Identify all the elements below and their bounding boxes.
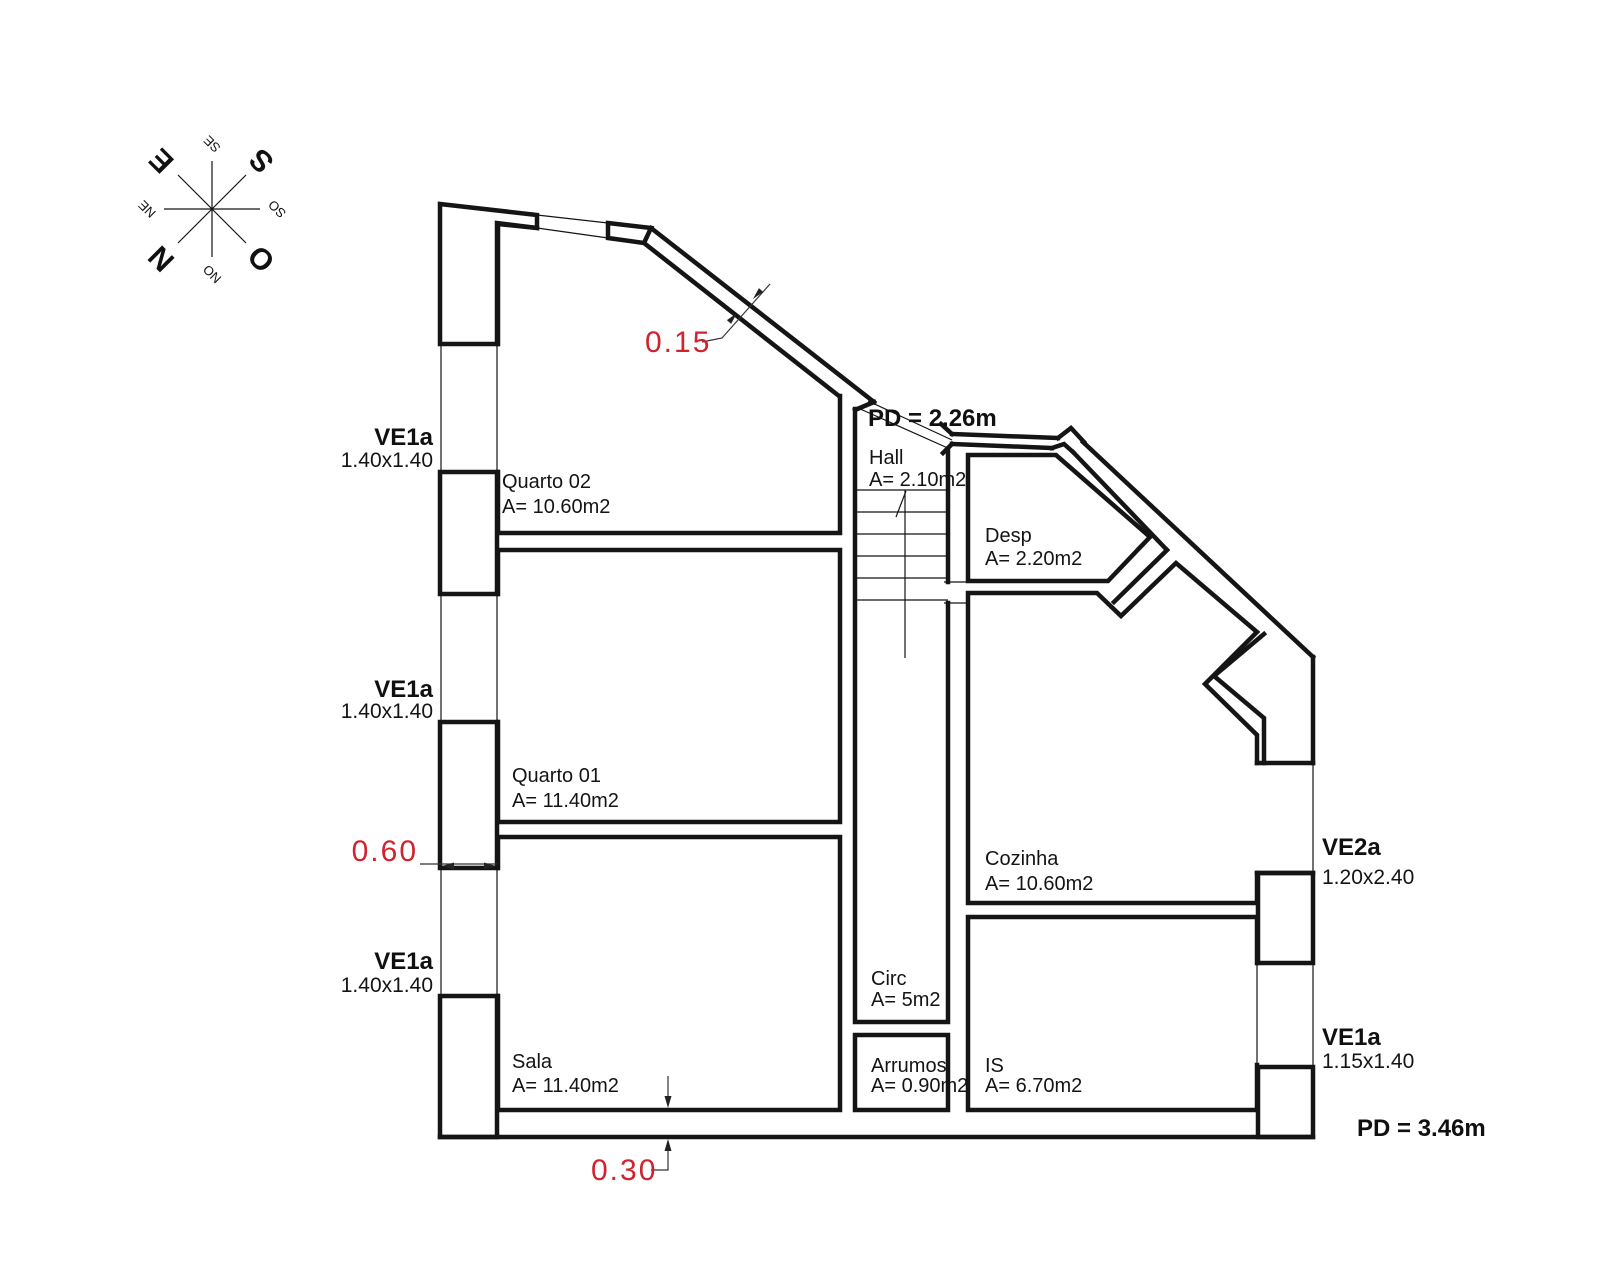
wall-right-diagonal-outer — [1083, 442, 1313, 657]
room-label-arrumos: Arrumos — [871, 1056, 947, 1076]
dim-wall-060: 0.60 — [352, 837, 418, 867]
wall-diagonal-inner — [644, 243, 839, 396]
wall-left-box4 — [440, 996, 497, 1137]
window-label-ve1a-2: VE1a — [374, 678, 433, 702]
windows-right-glazing — [1257, 763, 1313, 1067]
window-size-ve2a: 1.20x2.40 — [1322, 867, 1414, 888]
room-area-is: A= 6.70m2 — [985, 1076, 1082, 1096]
wall-right-box2 — [1258, 1067, 1313, 1137]
dim-030-arrow-up — [665, 1139, 672, 1151]
window-ve2a-jambs — [1257, 763, 1313, 873]
wall-left-box3 — [440, 722, 497, 868]
room-label-is: IS — [985, 1056, 1004, 1076]
wall-right-diagonal-inner — [1073, 452, 1167, 550]
room-area-sala: A= 11.40m2 — [512, 1076, 619, 1096]
wall-diagonal-outer — [651, 228, 874, 402]
room-label-quarto01: Quarto 01 — [512, 766, 601, 786]
room-area-quarto01: A= 11.40m2 — [512, 791, 619, 811]
room-label-desp: Desp — [985, 526, 1032, 546]
window-size-ve1a-2: 1.40x1.40 — [341, 701, 433, 722]
room-label-quarto02: Quarto 02 — [502, 472, 591, 492]
room-area-quarto02: A= 10.60m2 — [502, 497, 610, 517]
window-label-ve2a: VE2a — [1322, 836, 1381, 860]
wall-left-box2 — [440, 472, 497, 594]
wall-top-box — [608, 223, 651, 243]
entry-wall — [952, 434, 1058, 448]
dimension-leaders — [420, 284, 770, 1170]
dim-wall-030: 0.30 — [591, 1156, 657, 1186]
room-area-desp: A= 2.20m2 — [985, 549, 1082, 569]
room-label-cozinha: Cozinha — [985, 849, 1058, 869]
floor-plan-canvas: N S E O NE SE SO NO Quarto 02 A= 10.60m2… — [0, 0, 1600, 1280]
room-area-hall: A= 2.10m2 — [869, 470, 966, 490]
room-label-circ: Circ — [871, 969, 907, 989]
room-label-hall: Hall — [869, 448, 903, 468]
room-area-circ: A= 5m2 — [871, 990, 940, 1010]
stairs-treads — [857, 490, 948, 600]
room-area-arrumos: A= 0.90m2 — [871, 1076, 968, 1096]
window-size-ve1a-3: 1.40x1.40 — [341, 975, 433, 996]
window-label-ve1a-right: VE1a — [1322, 1026, 1381, 1050]
compass-arms — [164, 161, 260, 257]
window-size-ve1a-1: 1.40x1.40 — [341, 450, 433, 471]
window-size-ve1a-right: 1.15x1.40 — [1322, 1051, 1414, 1072]
floor-plan-drawing — [0, 0, 1600, 1280]
dim-030-arrow-down — [665, 1096, 672, 1108]
window-top-glazing — [537, 215, 608, 238]
window-label-ve1a-1: VE1a — [374, 426, 433, 450]
hall-circ-strip-outline — [855, 409, 948, 1022]
dim-wall-015: 0.15 — [645, 328, 711, 358]
ceiling-height-hall: PD = 2.26m — [868, 407, 997, 431]
dimension-arrows — [442, 288, 763, 1151]
wall-right-box1 — [1258, 873, 1313, 963]
window-label-ve1a-3: VE1a — [374, 950, 433, 974]
ceiling-height-main: PD = 3.46m — [1357, 1117, 1486, 1141]
room-area-cozinha: A= 10.60m2 — [985, 874, 1093, 894]
room-label-sala: Sala — [512, 1052, 552, 1072]
